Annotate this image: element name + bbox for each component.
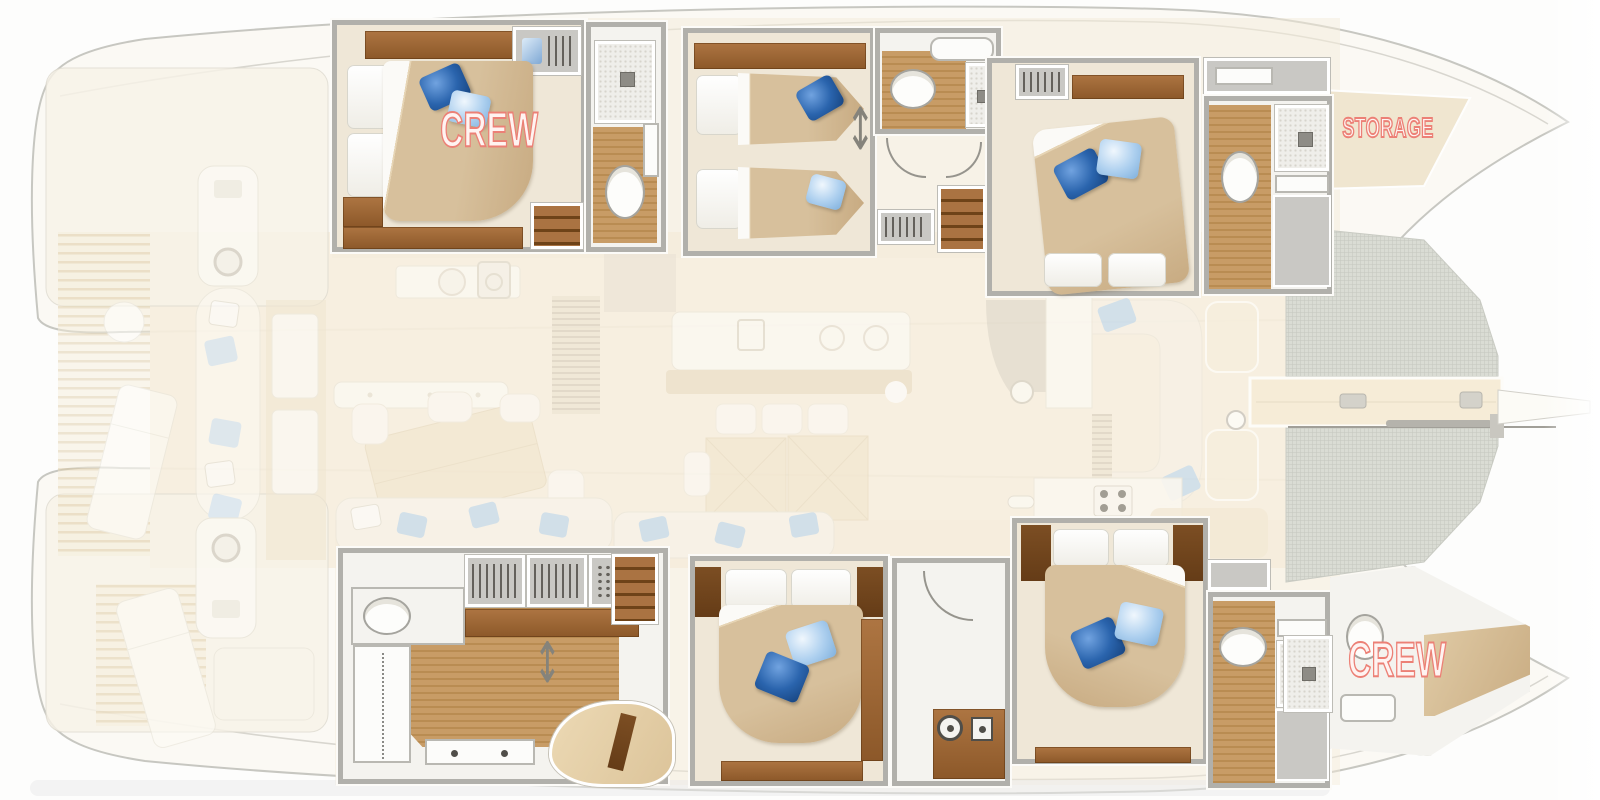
sink-counter: [643, 123, 659, 177]
headboard-cabinet: [1072, 75, 1184, 99]
crew-bathroom: [586, 22, 666, 252]
twin-bed-duvet: [738, 167, 864, 239]
bed-pillow: [696, 169, 742, 229]
boom-spar: [1386, 420, 1492, 427]
walkway-hardware: [1340, 394, 1366, 408]
wardrobe: [527, 555, 587, 607]
stairs-icon: [938, 186, 986, 252]
toilet-room: [351, 587, 465, 645]
wardrobe-hanger-icon: [1023, 72, 1061, 92]
storage-label: STORAGE: [1338, 112, 1439, 144]
bed-pillow: [1044, 253, 1102, 287]
helm-station: [198, 166, 258, 286]
wardrobe: [1016, 65, 1068, 99]
walkway-hardware: [1460, 392, 1482, 408]
wardrobe-hanger-icon: [472, 564, 518, 598]
vanity-cabinet: [1204, 58, 1330, 94]
toilet-icon: [1221, 151, 1259, 203]
shower-icon: [1275, 105, 1329, 171]
bed-pillow: [696, 75, 742, 135]
galley-island: [672, 312, 910, 370]
fridge-cabinet: [604, 254, 676, 312]
cabinet: [1277, 711, 1327, 779]
washer-door: [947, 725, 954, 732]
wardrobe-hanger-icon: [885, 217, 927, 237]
toilet-icon: [890, 69, 936, 109]
double-cabin-forward: [987, 58, 1199, 296]
dishwasher-icon: [478, 262, 510, 298]
washer-icon: [937, 715, 963, 741]
catamaran-floorplan: ↕ ↕: [0, 0, 1600, 800]
headboard-cabinet: [365, 31, 535, 59]
helm-station: [196, 518, 256, 638]
nightstand: [695, 567, 721, 617]
dining-chair: [808, 404, 848, 434]
island-bench: [666, 370, 912, 394]
bed-pillow: [1053, 529, 1109, 567]
guest-bathroom: [875, 28, 1001, 134]
convertible-berth-arrow-icon: ↕: [533, 636, 561, 692]
foot-bench: [721, 761, 863, 781]
cabinet: [1208, 560, 1270, 590]
shelf-cabinet: [353, 645, 411, 763]
toilet-icon: [1219, 627, 1267, 667]
convertible-berth-arrow-icon: ↕: [846, 100, 875, 158]
dining-chair: [684, 452, 710, 496]
low-cabinet: [425, 739, 535, 765]
chair: [428, 392, 472, 422]
bathtub-icon: [930, 37, 994, 61]
handle: [451, 750, 458, 757]
companionway-stairs: [552, 296, 600, 414]
winch-icon: [1227, 411, 1245, 429]
hull-stairs: [1092, 414, 1112, 478]
bed-pillow: [725, 569, 787, 609]
bottle-icon: [1008, 496, 1034, 508]
sofa-trim: [607, 713, 636, 771]
headboard-cabinet: [694, 43, 866, 69]
shower-drain-icon: [620, 72, 635, 87]
stairs-icon: [531, 203, 583, 249]
round-pouf: [104, 302, 144, 342]
dryer-door: [979, 726, 986, 733]
bed-pillow: [1108, 253, 1166, 287]
shower-icon: [595, 41, 655, 123]
crew-aft-label: CREW: [440, 103, 534, 159]
toilet-icon: [363, 597, 411, 635]
shelf-divider: [382, 653, 384, 759]
stairs-icon: [612, 554, 658, 624]
shelf: [1275, 175, 1329, 193]
bench-seat: [1340, 694, 1396, 722]
foot-bench: [1035, 747, 1191, 763]
bed-pillow: [1113, 529, 1169, 567]
helm-wheel-icon: [213, 535, 239, 561]
double-cabin-aft: [690, 556, 888, 786]
right-fade: [1544, 0, 1600, 800]
stove-icon: [1094, 486, 1132, 516]
nightstand: [343, 197, 383, 227]
winch-icon: [1011, 381, 1033, 403]
sink-icon: [439, 269, 465, 295]
bed-pillow: [791, 569, 851, 609]
foredeck-sunpad: [1206, 302, 1258, 372]
dining-chair: [762, 404, 802, 434]
crew-bow-label: CREW: [1348, 633, 1442, 689]
shelf: [1277, 619, 1327, 637]
shower-drain-icon: [1298, 132, 1313, 147]
door-swing: [923, 571, 973, 621]
dining-chair: [716, 404, 756, 434]
chair: [500, 394, 540, 422]
side-cabinet: [861, 619, 883, 761]
wardrobe-hanger-icon: [534, 564, 580, 598]
dryer-icon: [971, 717, 993, 741]
wardrobe-hanger-icon: [548, 36, 576, 66]
foredeck-sunpad: [1206, 430, 1258, 500]
toilet-icon: [605, 165, 645, 219]
shower-icon: [1284, 636, 1332, 712]
laundry-cabinet: [933, 709, 1005, 779]
forward-bathroom: [1204, 96, 1332, 294]
double-cabin-starboard: [1012, 518, 1208, 764]
nav-desk: [1046, 296, 1092, 408]
helm-wheel-icon: [215, 249, 241, 275]
laundry-room: [892, 558, 1010, 786]
wardrobe: [465, 555, 525, 607]
foot-cabinet: [343, 227, 523, 249]
chair: [352, 404, 388, 444]
pillow-light-blue: [1096, 138, 1143, 179]
bottom-shadow: [30, 780, 1330, 796]
trampoline-net: [1286, 426, 1498, 582]
handle: [501, 750, 508, 757]
sink-counter: [1215, 67, 1273, 85]
wardrobe: [878, 210, 934, 244]
cabinet: [1275, 197, 1329, 285]
shower-drain-icon: [1302, 667, 1316, 681]
